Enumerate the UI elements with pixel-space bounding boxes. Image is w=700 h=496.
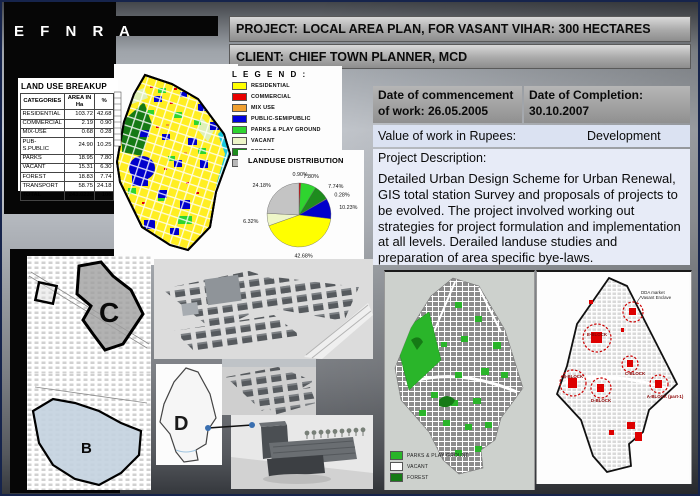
table-cell: 7.74 (95, 173, 114, 182)
pie-slice (267, 183, 299, 215)
zone-d-leader-line (200, 418, 262, 434)
table-cell: 7.80 (95, 154, 114, 163)
table-cell: 24.90 (64, 138, 95, 154)
table-row: MIX-USE0.680.28 (21, 128, 114, 137)
landuse-pie-chart: 0.90%7.80%7.74%0.28%10.23%42.68%6.32%24.… (238, 160, 364, 266)
table-row: TOTAL243.0235100 (21, 191, 114, 200)
table-cell: 0.28 (95, 128, 114, 137)
project-label: PROJECT: (236, 22, 298, 36)
pie-chart-panel: LANDUSE DISTRIBUTION 0.90%7.80%7.74%0.28… (238, 150, 364, 266)
legend-item: VACANT (232, 137, 342, 145)
table-cell: 100 (95, 191, 114, 200)
table-row: RESIDENTIAL103.7242.68 (21, 110, 114, 119)
table-row: PARKS18.957.80 (21, 154, 114, 163)
table-row: TRANSPORT58.7524.18 (21, 182, 114, 191)
legend-label: VACANT (251, 138, 275, 144)
zone-b-label: B (81, 440, 92, 457)
table-cell: COMMERCIAL (21, 119, 65, 128)
value-of-work-label: Value of work in Rupees: (378, 129, 516, 143)
open-space-map-legend: PARKS & PLAY GROUNDVACANTFOREST (390, 449, 469, 482)
legend-item: PUBLIC-SEMIPUBLIC (232, 115, 342, 123)
project-description-label: Project Description: (378, 151, 685, 165)
e-block-label: E-BLOCK (587, 332, 608, 337)
legend-label: PARKS & PLAY GROUND (251, 127, 321, 133)
legend-item: MIX USE (232, 104, 342, 112)
open-space-map-panel: PARKS & PLAY GROUNDVACANTFOREST (384, 270, 535, 490)
table-cell: 15.31 (64, 163, 95, 172)
legend-label: PARKS & PLAY GROUND (407, 453, 469, 459)
project-title-bar: PROJECT: LOCAL AREA PLAN, FOR VASANT VIH… (229, 16, 691, 42)
legend-item: PARKS & PLAY GROUND (390, 451, 469, 460)
landuse-table-head: CATEGORIESAREA IN Ha% (21, 94, 114, 110)
legend-item: RESIDENTIAL (232, 82, 342, 90)
legend-swatch (390, 451, 403, 460)
date-commencement: Date of commencement of work: 26.05.2005 (373, 86, 522, 123)
zone-c-label: C (99, 297, 119, 328)
b-block-label: B-BLOCK (563, 374, 584, 379)
pie-label: 7.74% (328, 184, 343, 190)
legend-title: L E G E N D : (232, 70, 342, 79)
map-scale-bar (114, 92, 121, 146)
zone-d-map: D (156, 364, 222, 465)
presentation-slide: E F N R A PROJECT: LOCAL AREA PLAN, FOR … (0, 0, 700, 496)
landuse-table-panel: LAND USE BREAKUP CATEGORIESAREA IN Ha% R… (18, 78, 118, 191)
table-cell: TRANSPORT (21, 182, 65, 191)
pie-label: 24.18% (253, 183, 271, 189)
project-description-body: Detailed Urban Design Scheme for Urban R… (378, 171, 685, 266)
table-cell: 243.0235 (64, 191, 95, 200)
landuse-table-title: LAND USE BREAKUP (21, 82, 116, 91)
legend-swatch (390, 473, 403, 482)
pie-label: 0.28% (334, 192, 349, 198)
table-cell: 0.90 (95, 119, 114, 128)
legend-item: FOREST (390, 473, 469, 482)
table-cell: MIX-USE (21, 128, 65, 137)
table-row: FOREST18.837.74 (21, 173, 114, 182)
table-cell: 0.68 (64, 128, 95, 137)
table-cell: PARKS (21, 154, 65, 163)
legend-label: PUBLIC-SEMIPUBLIC (251, 116, 311, 122)
table-row: VACANT15.316.30 (21, 163, 114, 172)
landuse-table: CATEGORIESAREA IN Ha% RESIDENTIAL103.724… (20, 93, 114, 201)
table-col-header: AREA IN Ha (64, 94, 95, 110)
d-block-label: D-BLOCK (591, 398, 612, 403)
landuse-table-body: RESIDENTIAL103.7242.68COMMERCIAL2.190.90… (21, 110, 114, 200)
3d-cluster-render (222, 359, 316, 415)
table-cell: 18.83 (64, 173, 95, 182)
legend-label: COMMERCIAL (251, 94, 291, 100)
zone-d-label: D (174, 413, 188, 435)
table-row: PUB-S.PUBLIC24.9010.25 (21, 138, 114, 154)
value-of-work-text: Development (587, 129, 661, 143)
3d-massing-render (154, 259, 373, 359)
pie-label: 6.32% (243, 219, 258, 225)
legend-label: RESIDENTIAL (251, 83, 290, 89)
landuse-map (114, 64, 238, 265)
zone-c-map: C (27, 256, 151, 373)
legend-label: VACANT (407, 464, 428, 470)
zone-b-map: B (27, 373, 151, 490)
legend-item: VACANT (390, 462, 469, 471)
a-block-label: A-BLOCK (part-1) (647, 394, 684, 399)
table-cell: VACANT (21, 163, 65, 172)
dda-market-label-line2: Vasant Enclave (641, 295, 672, 300)
date-completion: Date of Completion: 30.10.2007 (524, 86, 690, 123)
table-cell: TOTAL (21, 191, 65, 200)
table-col-header: CATEGORIES (21, 94, 65, 110)
zone-maps-panel: C B (27, 256, 151, 490)
c-block-label: C-BLOCK (625, 371, 646, 376)
table-cell: 42.68 (95, 110, 114, 119)
project-title: LOCAL AREA PLAN, FOR VASANT VIHAR: 300 H… (303, 22, 651, 36)
block-projects-map: DDA market Vasant Enclave E-BLOCK C-BLOC… (537, 272, 689, 480)
client-name: CHIEF TOWN PLANNER, MCD (289, 50, 467, 64)
legend-label: FOREST (407, 475, 428, 481)
table-cell: PUB-S.PUBLIC (21, 138, 65, 154)
legend-label: MIX USE (251, 105, 275, 111)
table-cell: 10.25 (95, 138, 114, 154)
table-cell: RESIDENTIAL (21, 110, 65, 119)
project-description-panel: Project Description: Detailed Urban Desi… (373, 149, 690, 265)
table-cell: 2.19 (64, 119, 95, 128)
logo-text: E F N R A (14, 23, 136, 40)
legend-item: PARKS & PLAY GROUND (232, 126, 342, 134)
map-legend-panel: L E G E N D : RESIDENTIALCOMMERCIALMIX U… (226, 66, 342, 158)
table-cell: 18.95 (64, 154, 95, 163)
pie-label: 10.23% (339, 205, 357, 211)
client-label: CLIENT: (236, 50, 284, 64)
table-cell: 6.30 (95, 163, 114, 172)
block-projects-map-panel: DDA market Vasant Enclave E-BLOCK C-BLOC… (536, 270, 692, 484)
table-cell: 58.75 (64, 182, 95, 191)
legend-swatch (390, 462, 403, 471)
legend-item: COMMERCIAL (232, 93, 342, 101)
table-row: COMMERCIAL2.190.90 (21, 119, 114, 128)
landuse-map-zones (114, 64, 238, 265)
pie-label: 7.80% (304, 174, 319, 180)
table-col-header: % (95, 94, 114, 110)
table-cell: 24.18 (95, 182, 114, 191)
table-cell: 103.72 (64, 110, 95, 119)
table-cell: FOREST (21, 173, 65, 182)
value-of-work-row: Value of work in Rupees: Development (373, 125, 690, 147)
